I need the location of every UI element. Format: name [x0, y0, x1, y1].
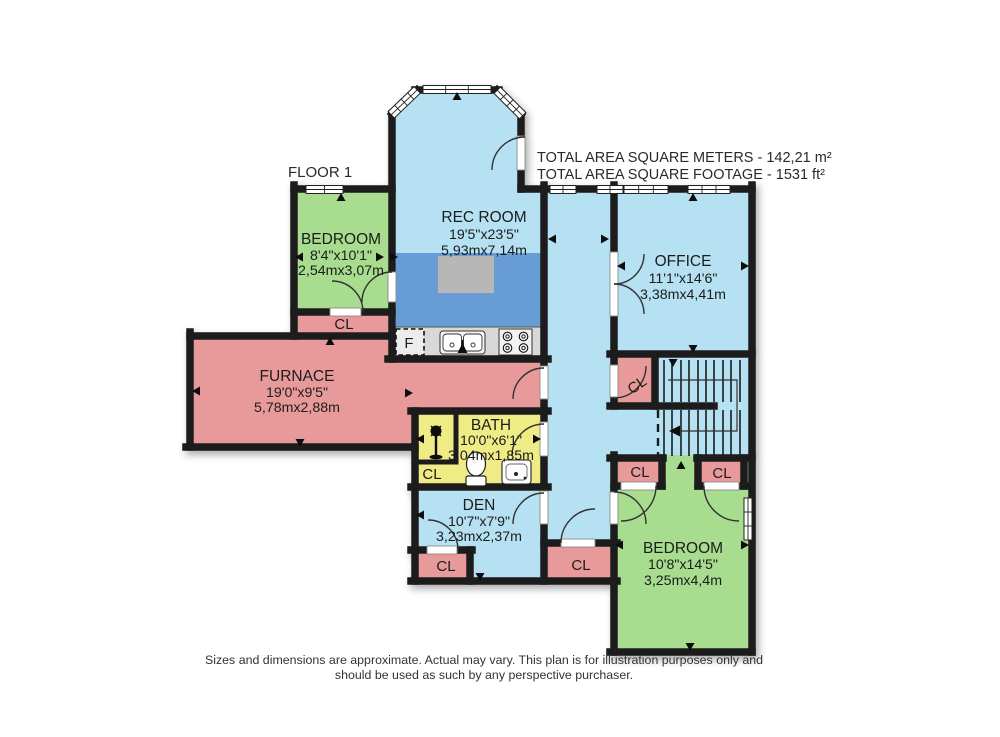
rec-room-metric: 5,93mx7,14m [441, 243, 527, 259]
den-metric: 3,23mx2,37m [436, 529, 522, 545]
total-area-meters: TOTAL AREA SQUARE METERS - 142,21 m² [537, 150, 832, 166]
closet-label-bedroom-lower-left: CL [630, 464, 649, 481]
rec-room-imperial: 19'5"x23'5" [449, 227, 519, 243]
floor-title: FLOOR 1 [288, 164, 352, 181]
floorplan-page: FLOOR 1 TOTAL AREA SQUARE METERS - 142,2… [0, 0, 1000, 737]
closet-label-hall: CL [571, 557, 590, 574]
disclaimer-line1: Sizes and dimensions are approximate. Ac… [205, 653, 763, 667]
bedroom-upper-name: BEDROOM [301, 231, 381, 248]
bedroom-lower-imperial: 10'8"x14'5" [648, 557, 718, 573]
closet-label-bedroom-upper: CL [334, 316, 353, 333]
office-name: OFFICE [655, 253, 712, 270]
kitchen-sink [440, 331, 485, 354]
fridge-label: F [404, 335, 413, 352]
kitchen-area [392, 253, 544, 357]
stove [499, 329, 532, 355]
kitchen-island [438, 256, 494, 293]
office-window-1 [624, 186, 668, 194]
disclaimer-line2: should be used as such by any perspectiv… [335, 668, 633, 682]
bedroom-lower-window [744, 498, 752, 540]
furnace-metric: 5,78mx2,88m [254, 400, 340, 416]
bedroom-upper-imperial: 8'4"x10'1" [310, 248, 372, 264]
floorplan-canvas: FLOOR 1 TOTAL AREA SQUARE METERS - 142,2… [0, 0, 1000, 737]
total-area-footage: TOTAL AREA SQUARE FOOTAGE - 1531 ft² [537, 167, 825, 183]
closet-label-bedroom-lower-right: CL [712, 465, 731, 482]
bedroom-lower-name: BEDROOM [643, 540, 723, 557]
bath-metric: 3,04mx1,85m [448, 448, 534, 464]
bedroom-upper-metric: 2,54mx3,07m [298, 263, 384, 279]
den-imperial: 10'7"x7'9" [448, 514, 510, 530]
office-window-2 [688, 186, 730, 194]
hallway-window-1 [550, 186, 576, 194]
office-metric: 3,38mx4,41m [640, 287, 726, 303]
closet-label-den: CL [436, 558, 455, 575]
den-name: DEN [463, 497, 496, 514]
office-imperial: 11'1"x14'6" [649, 271, 718, 287]
bath-imperial: 10'0"x6'1" [460, 433, 522, 449]
closet-label-bath: CL [422, 466, 441, 483]
bedroom-upper-window [306, 186, 343, 194]
hallway-window-2 [597, 186, 623, 194]
rec-room-name: REC ROOM [441, 209, 526, 226]
furnace-name: FURNACE [260, 368, 335, 385]
furnace-imperial: 19'0"x9'5" [266, 385, 328, 401]
bath-name: BATH [471, 417, 511, 434]
bedroom-lower-metric: 3,25mx4,4m [644, 573, 722, 589]
